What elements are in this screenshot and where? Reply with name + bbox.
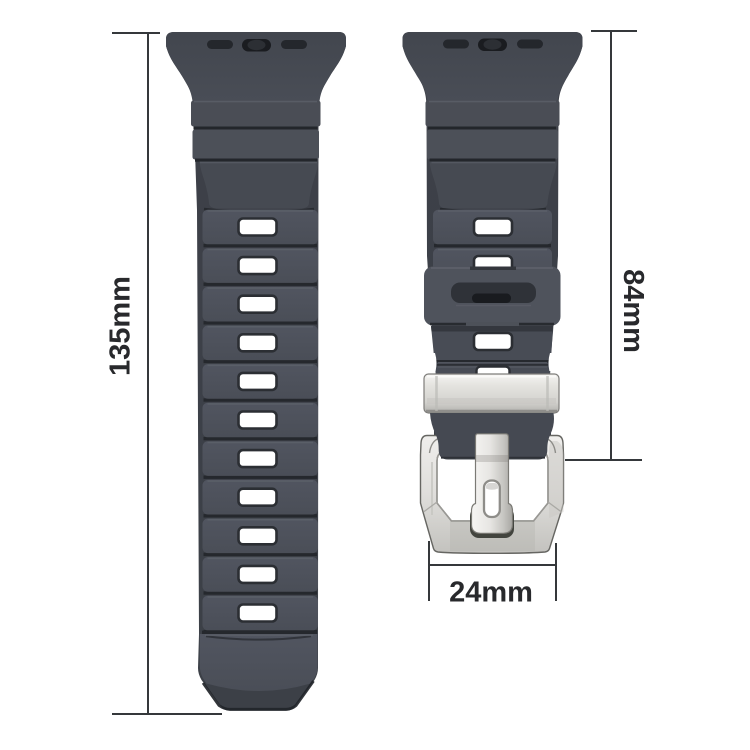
svg-text:135mm: 135mm [105,276,137,376]
svg-text:24mm: 24mm [449,577,533,609]
svg-text:84mm: 84mm [617,269,649,353]
